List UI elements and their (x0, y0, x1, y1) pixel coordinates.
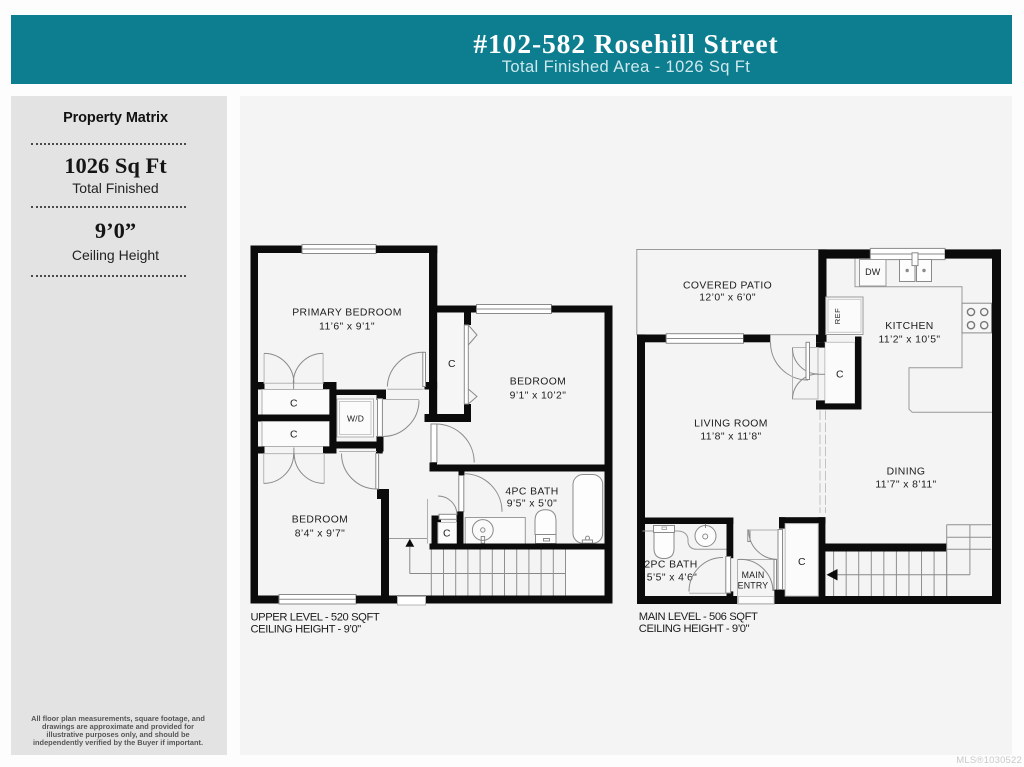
svg-text:W/D: W/D (347, 414, 364, 424)
svg-text:9’1" x 10’2": 9’1" x 10’2" (510, 390, 567, 401)
svg-text:BEDROOM: BEDROOM (292, 514, 349, 525)
svg-text:CEILING HEIGHT - 9’0": CEILING HEIGHT - 9’0" (251, 623, 362, 635)
svg-text:ENTRY: ENTRY (738, 580, 769, 590)
svg-text:MAIN LEVEL - 506 SQFT: MAIN LEVEL - 506 SQFT (639, 611, 758, 623)
svg-text:C: C (290, 399, 298, 410)
svg-text:2PC BATH: 2PC BATH (644, 560, 697, 571)
svg-text:5’5" x 4’6": 5’5" x 4’6" (647, 573, 697, 584)
svg-text:9’5" x 5’0": 9’5" x 5’0" (507, 498, 557, 509)
svg-text:C: C (443, 529, 451, 540)
svg-text:PRIMARY BEDROOM: PRIMARY BEDROOM (292, 308, 402, 319)
svg-text:4PC BATH: 4PC BATH (505, 486, 558, 497)
svg-text:C: C (290, 430, 298, 441)
svg-text:REF: REF (833, 308, 842, 325)
svg-text:UPPER LEVEL - 520 SQFT: UPPER LEVEL - 520 SQFT (251, 611, 380, 623)
svg-text:11’2" x 10’5": 11’2" x 10’5" (878, 335, 940, 346)
svg-text:MAIN: MAIN (742, 570, 765, 580)
svg-text:KITCHEN: KITCHEN (885, 321, 933, 332)
svg-text:11’8" x 11’8": 11’8" x 11’8" (700, 431, 761, 442)
svg-text:DINING: DINING (887, 466, 926, 477)
svg-text:BEDROOM: BEDROOM (510, 376, 567, 387)
svg-text:CEILING HEIGHT - 9’0": CEILING HEIGHT - 9’0" (639, 623, 750, 635)
svg-text:11’7" x 8’11": 11’7" x 8’11" (875, 479, 936, 490)
svg-text:LIVING ROOM: LIVING ROOM (694, 418, 768, 429)
svg-text:C: C (798, 557, 806, 568)
svg-text:DW: DW (865, 267, 881, 277)
svg-text:8’4" x 9’7": 8’4" x 9’7" (295, 528, 345, 539)
svg-text:12’0" x 6’0": 12’0" x 6’0" (699, 292, 756, 303)
svg-text:C: C (448, 359, 456, 370)
svg-text:COVERED PATIO: COVERED PATIO (683, 280, 772, 291)
svg-text:C: C (836, 370, 844, 381)
svg-text:11’6" x 9’1": 11’6" x 9’1" (319, 322, 375, 333)
